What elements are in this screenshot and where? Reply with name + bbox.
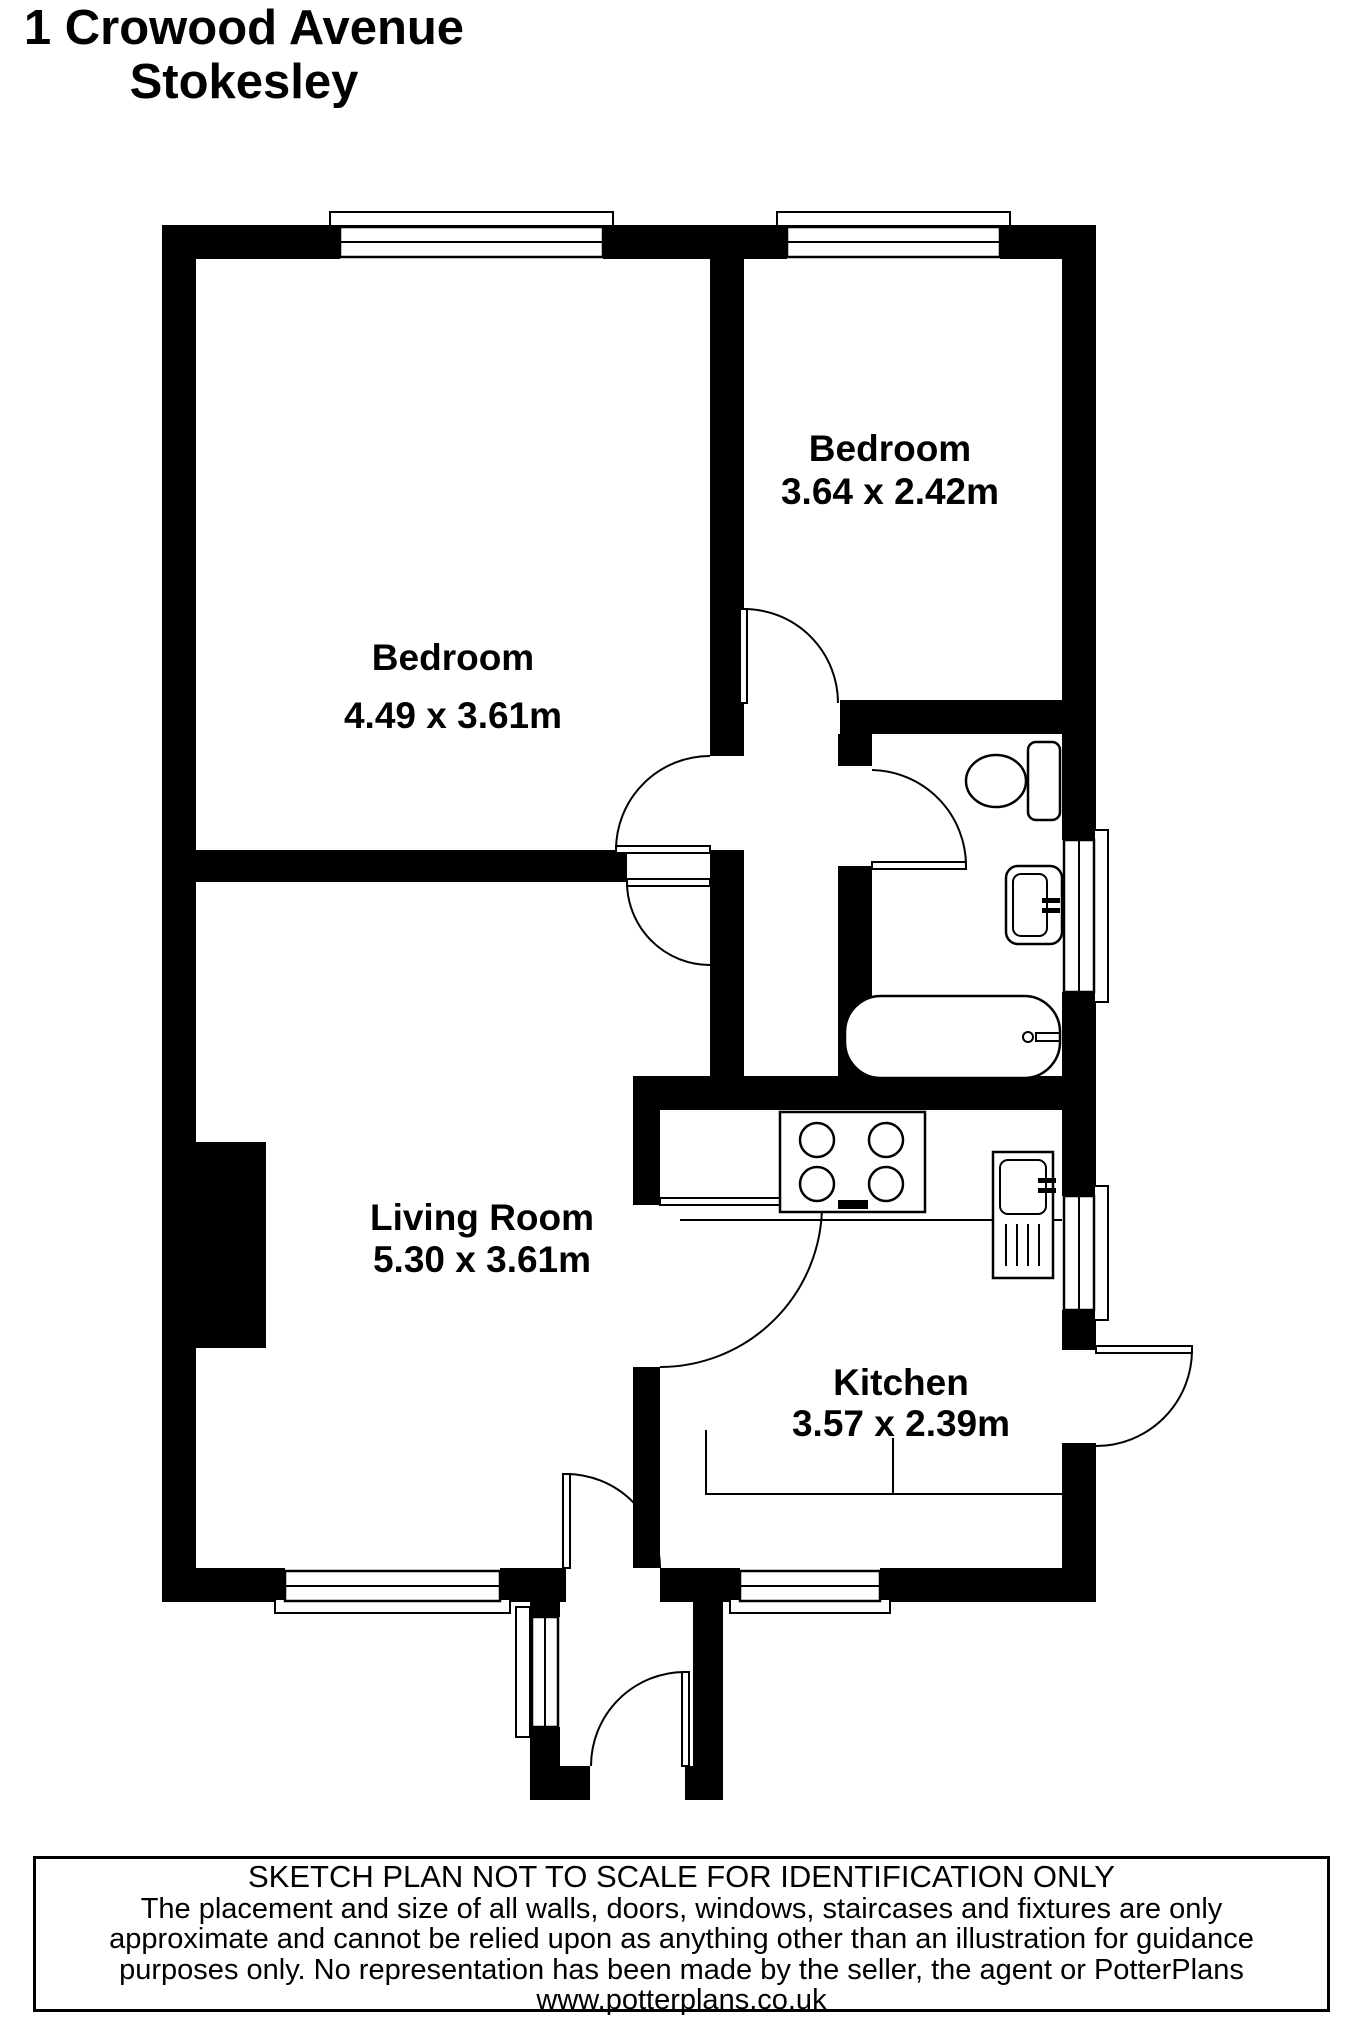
- living-room-label: Living Room: [370, 1197, 594, 1238]
- wall-right-2: [1062, 992, 1096, 1196]
- kitchen-label: Kitchen: [833, 1362, 969, 1403]
- bathroom-fixtures: [845, 742, 1062, 1078]
- door-bathroom: [872, 770, 966, 869]
- bath-icon: [845, 996, 1060, 1078]
- window-bedroom1: [330, 212, 613, 257]
- floor-plan-drawing: Bedroom 4.49 x 3.61m Bedroom 3.64 x 2.42…: [0, 0, 1361, 2025]
- wall-kitchen-top: [633, 1076, 1062, 1110]
- disclaimer-website: www.potterplans.co.uk: [36, 1985, 1327, 2015]
- door-kitchen: [660, 1198, 822, 1367]
- door-front: [591, 1672, 689, 1766]
- wall-bedroom-divider: [710, 259, 744, 703]
- wall-left: [162, 225, 196, 1602]
- wall-bedroom2-bathroom: [840, 700, 1096, 734]
- wall-top-2: [603, 225, 787, 259]
- wall-bathroom-west-1: [838, 734, 872, 766]
- bedroom1-dimensions: 4.49 x 3.61m: [344, 695, 562, 736]
- wall-bedroom-divider-stub: [710, 703, 744, 756]
- wall-bottom-1: [162, 1568, 285, 1602]
- wash-basin-icon: [1006, 866, 1062, 944]
- wall-living-kitchen-1: [633, 1076, 660, 1205]
- room-labels: Bedroom 4.49 x 3.61m Bedroom 3.64 x 2.42…: [344, 428, 1010, 1444]
- disclaimer-line-3: approximate and cannot be relied upon as…: [36, 1924, 1327, 1954]
- disclaimer-line-4: purposes only. No representation has bee…: [36, 1955, 1327, 1985]
- wall-bedroom1-living: [196, 850, 627, 882]
- disclaimer-box: SKETCH PLAN NOT TO SCALE FOR IDENTIFICAT…: [33, 1856, 1330, 2012]
- door-bedroom1: [616, 756, 710, 853]
- window-bedroom2: [777, 212, 1010, 257]
- disclaimer-line-2: The placement and size of all walls, doo…: [36, 1894, 1327, 1924]
- window-kitchen-side: [1064, 1186, 1108, 1320]
- toilet-icon: [966, 742, 1060, 820]
- kitchen-dimensions: 3.57 x 2.39m: [792, 1403, 1010, 1444]
- bedroom1-label: Bedroom: [372, 637, 534, 678]
- wall-right-3: [1062, 1310, 1096, 1350]
- windows: [275, 212, 1108, 1737]
- wall-porch-bottom-1: [530, 1766, 590, 1800]
- floorplan-page: 1 Crowood Avenue Stokesley: [0, 0, 1361, 2025]
- kitchen-sink-icon: [993, 1152, 1056, 1278]
- wall-bottom-2: [500, 1568, 566, 1602]
- window-living: [275, 1571, 510, 1613]
- wall-hall-vertical: [710, 850, 744, 1110]
- disclaimer-heading: SKETCH PLAN NOT TO SCALE FOR IDENTIFICAT…: [36, 1861, 1327, 1894]
- wall-bottom-3: [660, 1568, 740, 1602]
- living-room-dimensions: 5.30 x 3.61m: [373, 1239, 591, 1280]
- door-back: [1096, 1346, 1192, 1446]
- wall-right-1: [1062, 225, 1096, 840]
- bedroom2-label: Bedroom: [809, 428, 971, 469]
- window-kitchen-bottom: [730, 1571, 890, 1613]
- door-bedroom2: [740, 609, 838, 703]
- bedroom2-dimensions: 3.64 x 2.42m: [781, 471, 999, 512]
- hob-icon: [780, 1112, 925, 1212]
- wall-porch-bottom-2: [685, 1766, 723, 1800]
- door-living-hall: [627, 879, 710, 965]
- window-porch: [516, 1607, 558, 1737]
- window-bathroom: [1064, 830, 1108, 1002]
- wall-porch-left-1: [530, 1602, 560, 1617]
- wall-bottom-4: [880, 1568, 1096, 1602]
- chimney-breast: [196, 1142, 266, 1348]
